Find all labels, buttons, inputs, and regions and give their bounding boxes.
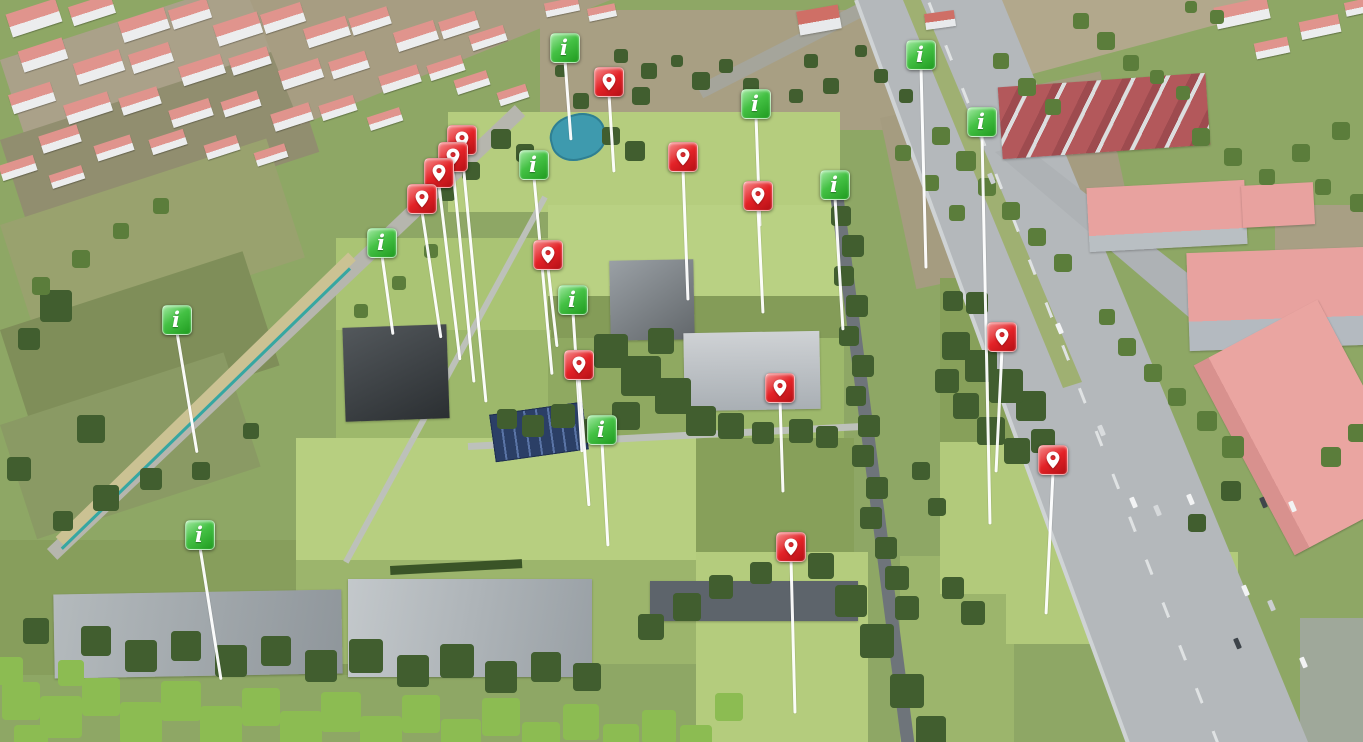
info-icon: i xyxy=(560,37,568,58)
pin-marker[interactable] xyxy=(987,322,1017,352)
terrain-patch xyxy=(1300,618,1363,742)
house xyxy=(367,107,404,131)
house xyxy=(1344,0,1363,17)
info-marker[interactable]: i xyxy=(185,520,215,550)
building xyxy=(998,73,1211,159)
pin-marker[interactable] xyxy=(668,142,698,172)
map-pin-icon xyxy=(412,189,432,209)
house xyxy=(1299,14,1342,40)
map-pin-icon xyxy=(748,186,768,206)
car xyxy=(1267,599,1276,611)
info-icon: i xyxy=(830,174,838,195)
map-3d-viewport[interactable]: iiiiiiiiiii xyxy=(0,0,1363,742)
house xyxy=(454,70,491,95)
house xyxy=(497,84,530,107)
map-pin-icon xyxy=(781,537,801,557)
pin-marker[interactable] xyxy=(564,350,594,380)
info-marker[interactable]: i xyxy=(367,228,397,258)
pin-marker[interactable] xyxy=(533,240,563,270)
building xyxy=(683,331,820,411)
info-marker[interactable]: i xyxy=(550,33,580,63)
info-marker[interactable]: i xyxy=(741,89,771,119)
house xyxy=(1254,37,1291,60)
terrain-patch xyxy=(696,438,854,552)
pin-marker[interactable] xyxy=(407,184,437,214)
building xyxy=(650,581,858,621)
building xyxy=(1086,180,1247,252)
pin-marker[interactable] xyxy=(765,373,795,403)
building xyxy=(1241,182,1315,228)
info-icon: i xyxy=(597,419,605,440)
building xyxy=(609,259,694,340)
pin-marker[interactable] xyxy=(776,532,806,562)
map-pin-icon xyxy=(1043,450,1063,470)
pin-marker[interactable] xyxy=(743,181,773,211)
house xyxy=(68,0,116,26)
info-icon: i xyxy=(377,232,385,253)
building xyxy=(53,589,342,678)
map-pin-icon xyxy=(770,378,790,398)
tree-cluster-foreground xyxy=(0,0,2,2)
info-icon: i xyxy=(529,154,537,175)
info-marker[interactable]: i xyxy=(967,107,997,137)
info-icon: i xyxy=(977,111,985,132)
map-pin-icon xyxy=(992,327,1012,347)
info-marker[interactable]: i xyxy=(519,150,549,180)
info-marker[interactable]: i xyxy=(820,170,850,200)
info-icon: i xyxy=(568,289,576,310)
info-marker[interactable]: i xyxy=(162,305,192,335)
info-icon: i xyxy=(751,93,759,114)
building xyxy=(342,324,449,422)
info-icon: i xyxy=(172,309,180,330)
info-icon: i xyxy=(195,524,203,545)
map-pin-icon xyxy=(599,72,619,92)
map-pin-icon xyxy=(569,355,589,375)
building xyxy=(348,579,592,677)
info-marker[interactable]: i xyxy=(587,415,617,445)
pin-marker[interactable] xyxy=(594,67,624,97)
map-pin-icon xyxy=(673,147,693,167)
map-pin-icon xyxy=(538,245,558,265)
terrain-patch xyxy=(548,205,842,305)
info-marker[interactable]: i xyxy=(906,40,936,70)
pin-marker[interactable] xyxy=(1038,445,1068,475)
house xyxy=(6,0,63,37)
info-icon: i xyxy=(916,44,924,65)
map-pin-icon xyxy=(429,163,449,183)
info-marker[interactable]: i xyxy=(558,285,588,315)
